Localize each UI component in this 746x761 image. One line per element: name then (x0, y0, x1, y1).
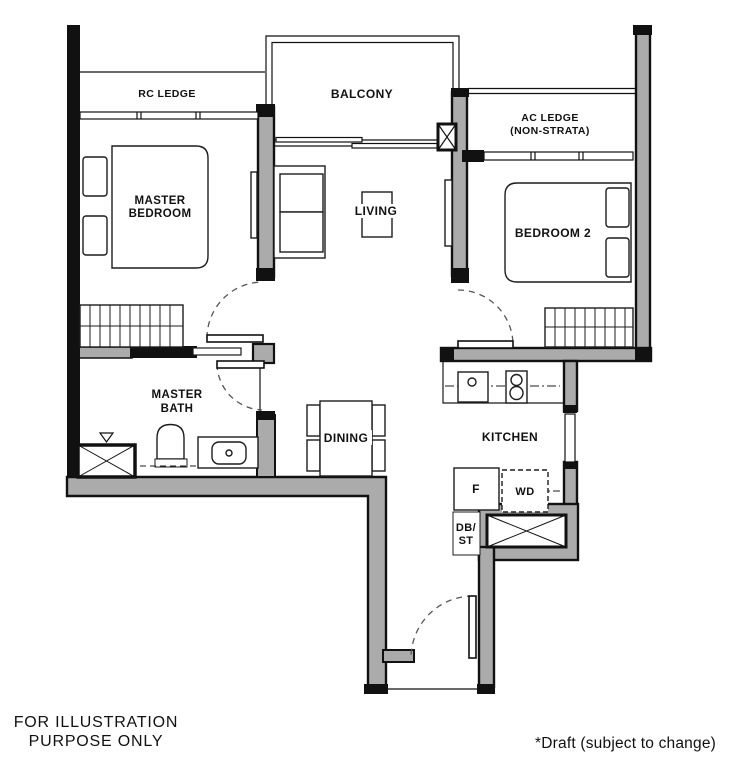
wall-corridor-right (479, 547, 494, 687)
wall-bath-top-black (130, 346, 197, 358)
wall-bath-top-gray (78, 347, 132, 358)
cap-right-wall-top (633, 25, 652, 35)
hob (506, 371, 527, 403)
label-dining: DINING (324, 431, 368, 445)
cap-kitchen-wall-left (440, 347, 454, 362)
label-master-bath-1: MASTER (152, 389, 203, 401)
label-master-bedroom-2: BEDROOM (129, 208, 192, 220)
entrance-door-leaf (469, 596, 476, 658)
wall-master-living-divider (258, 107, 274, 277)
master-pillow-2 (83, 216, 107, 255)
wall-door-pier (253, 344, 274, 363)
wall-right-exterior (636, 28, 650, 360)
cap-corridor-right-bottom (477, 684, 495, 694)
wall-left-exterior (67, 25, 80, 477)
label-master-bath-2: BATH (161, 403, 194, 415)
bedroom2-pillow-2 (606, 238, 629, 277)
dining-chair-1 (307, 405, 320, 436)
kitchen-sink (458, 372, 488, 402)
bedroom2-wardrobe (545, 308, 633, 347)
label-db-st-2: ST (459, 535, 474, 547)
cap-divider1-top (256, 104, 275, 117)
bedroom2-door-leaf (458, 341, 513, 348)
window-master-bedroom (80, 112, 258, 119)
window-kitchen (565, 414, 575, 462)
toilet (157, 425, 184, 460)
shower-box (78, 445, 135, 477)
label-ac-ledge-1: AC LEDGE (521, 112, 578, 124)
dining-chair-4 (372, 440, 385, 471)
label-kitchen: KITCHEN (482, 430, 538, 444)
basin-drain (226, 450, 232, 456)
bedroom2-pillow-1 (606, 188, 629, 227)
sofa-cushion-2 (280, 212, 323, 252)
cap-ac-window-stub (462, 150, 484, 162)
wall-kitchen-right-upper (564, 361, 577, 411)
sofa-cushion-1 (280, 174, 323, 212)
master-bed (112, 146, 208, 268)
cap-corridor-left-bottom (364, 684, 388, 694)
label-rc-ledge: RC LEDGE (138, 88, 195, 100)
ac-condenser-box (487, 515, 566, 547)
cap-divider2-bottom (451, 268, 469, 283)
label-washer-dryer: WD (515, 486, 534, 498)
wall-bedroom2-bottom (441, 348, 651, 361)
master-pillow-1 (83, 157, 107, 196)
label-balcony: BALCONY (331, 87, 393, 101)
cap-kitchen-window-top (563, 405, 577, 413)
floor-plan-page: RC LEDGE BALCONY AC LEDGE (NON-STRATA) M… (0, 0, 746, 761)
bath-slide-panel (193, 348, 241, 355)
cap-divider1-bottom (256, 268, 275, 281)
footnote-draft: *Draft (subject to change) (535, 735, 716, 752)
wall-living-bedroom2-divider (452, 92, 467, 276)
footnote-illustration-1: FOR ILLUSTRATION (14, 714, 179, 731)
sink-drain (468, 378, 476, 386)
column-marker-box (438, 124, 456, 150)
master-bedroom-door-leaf (207, 335, 263, 342)
label-fridge: F (472, 482, 480, 496)
living-tv-console (445, 180, 452, 246)
wall-entry-stub (383, 650, 414, 662)
master-tv-console (251, 172, 257, 238)
cap-divider2-top (451, 88, 469, 97)
label-bedroom2: BEDROOM 2 (515, 226, 591, 240)
sliding-door-panel-2 (352, 144, 437, 149)
footnote-illustration-2: PURPOSE ONLY (29, 733, 164, 750)
cap-kitchen-window-bottom (563, 462, 577, 469)
window-bedroom2 (484, 152, 633, 160)
label-db-st-1: DB/ (456, 522, 476, 534)
floor-plan-svg: RC LEDGE BALCONY AC LEDGE (NON-STRATA) M… (0, 0, 746, 761)
master-bath-door-leaf (217, 361, 264, 368)
label-living: LIVING (355, 204, 397, 218)
dining-chair-3 (372, 405, 385, 436)
master-wardrobe (80, 305, 183, 347)
wall-bath-dining-stub (257, 415, 275, 477)
label-ac-ledge-2: (NON-STRATA) (510, 125, 590, 137)
cap-bath-stub-top (256, 411, 275, 420)
label-master-bedroom-1: MASTER (135, 195, 186, 207)
dining-chair-2 (307, 440, 320, 471)
cap-bedroom2-wall-corner (635, 347, 652, 362)
sliding-door-panel-1 (276, 138, 362, 143)
